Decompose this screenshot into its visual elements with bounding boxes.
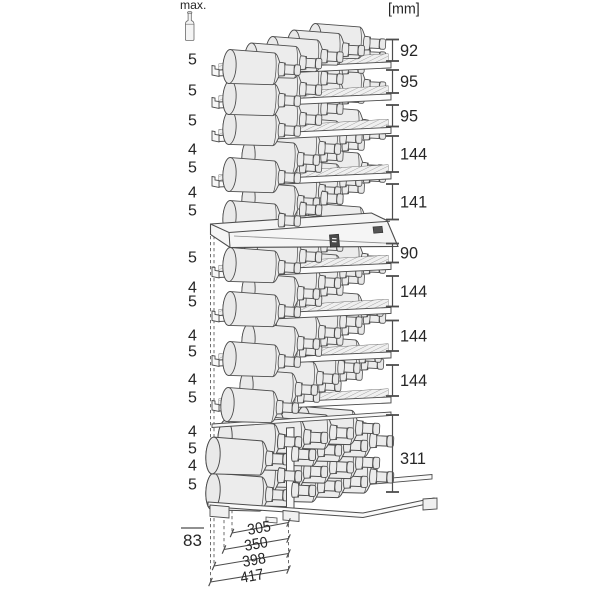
svg-text:5: 5: [188, 294, 197, 311]
svg-text:4: 4: [188, 424, 197, 441]
svg-text:5: 5: [188, 203, 197, 220]
svg-text:5: 5: [188, 477, 197, 494]
svg-text:144: 144: [400, 372, 427, 390]
svg-text:311: 311: [400, 450, 426, 468]
svg-text:4: 4: [188, 328, 197, 345]
svg-text:92: 92: [400, 42, 418, 60]
svg-text:144: 144: [400, 327, 427, 345]
svg-text:5: 5: [188, 160, 197, 177]
svg-text:5: 5: [188, 83, 197, 100]
svg-text:144: 144: [400, 146, 427, 164]
svg-text:max.: max.: [180, 0, 206, 12]
svg-text:5: 5: [188, 344, 197, 361]
svg-text:83: 83: [183, 531, 202, 550]
svg-text:144: 144: [400, 283, 427, 301]
svg-text:95: 95: [400, 73, 418, 91]
svg-text:4: 4: [188, 142, 197, 159]
svg-text:5: 5: [188, 113, 197, 130]
svg-text:4: 4: [188, 185, 197, 202]
svg-text:5: 5: [188, 390, 197, 407]
svg-text:4: 4: [188, 372, 197, 389]
svg-text:90: 90: [400, 245, 418, 263]
svg-text:141: 141: [400, 193, 427, 211]
svg-text:[mm]: [mm]: [388, 2, 420, 18]
svg-text:4: 4: [188, 458, 197, 475]
svg-text:5: 5: [188, 250, 197, 267]
svg-text:95: 95: [400, 107, 418, 125]
svg-text:5: 5: [188, 52, 197, 69]
svg-text:5: 5: [188, 441, 197, 458]
